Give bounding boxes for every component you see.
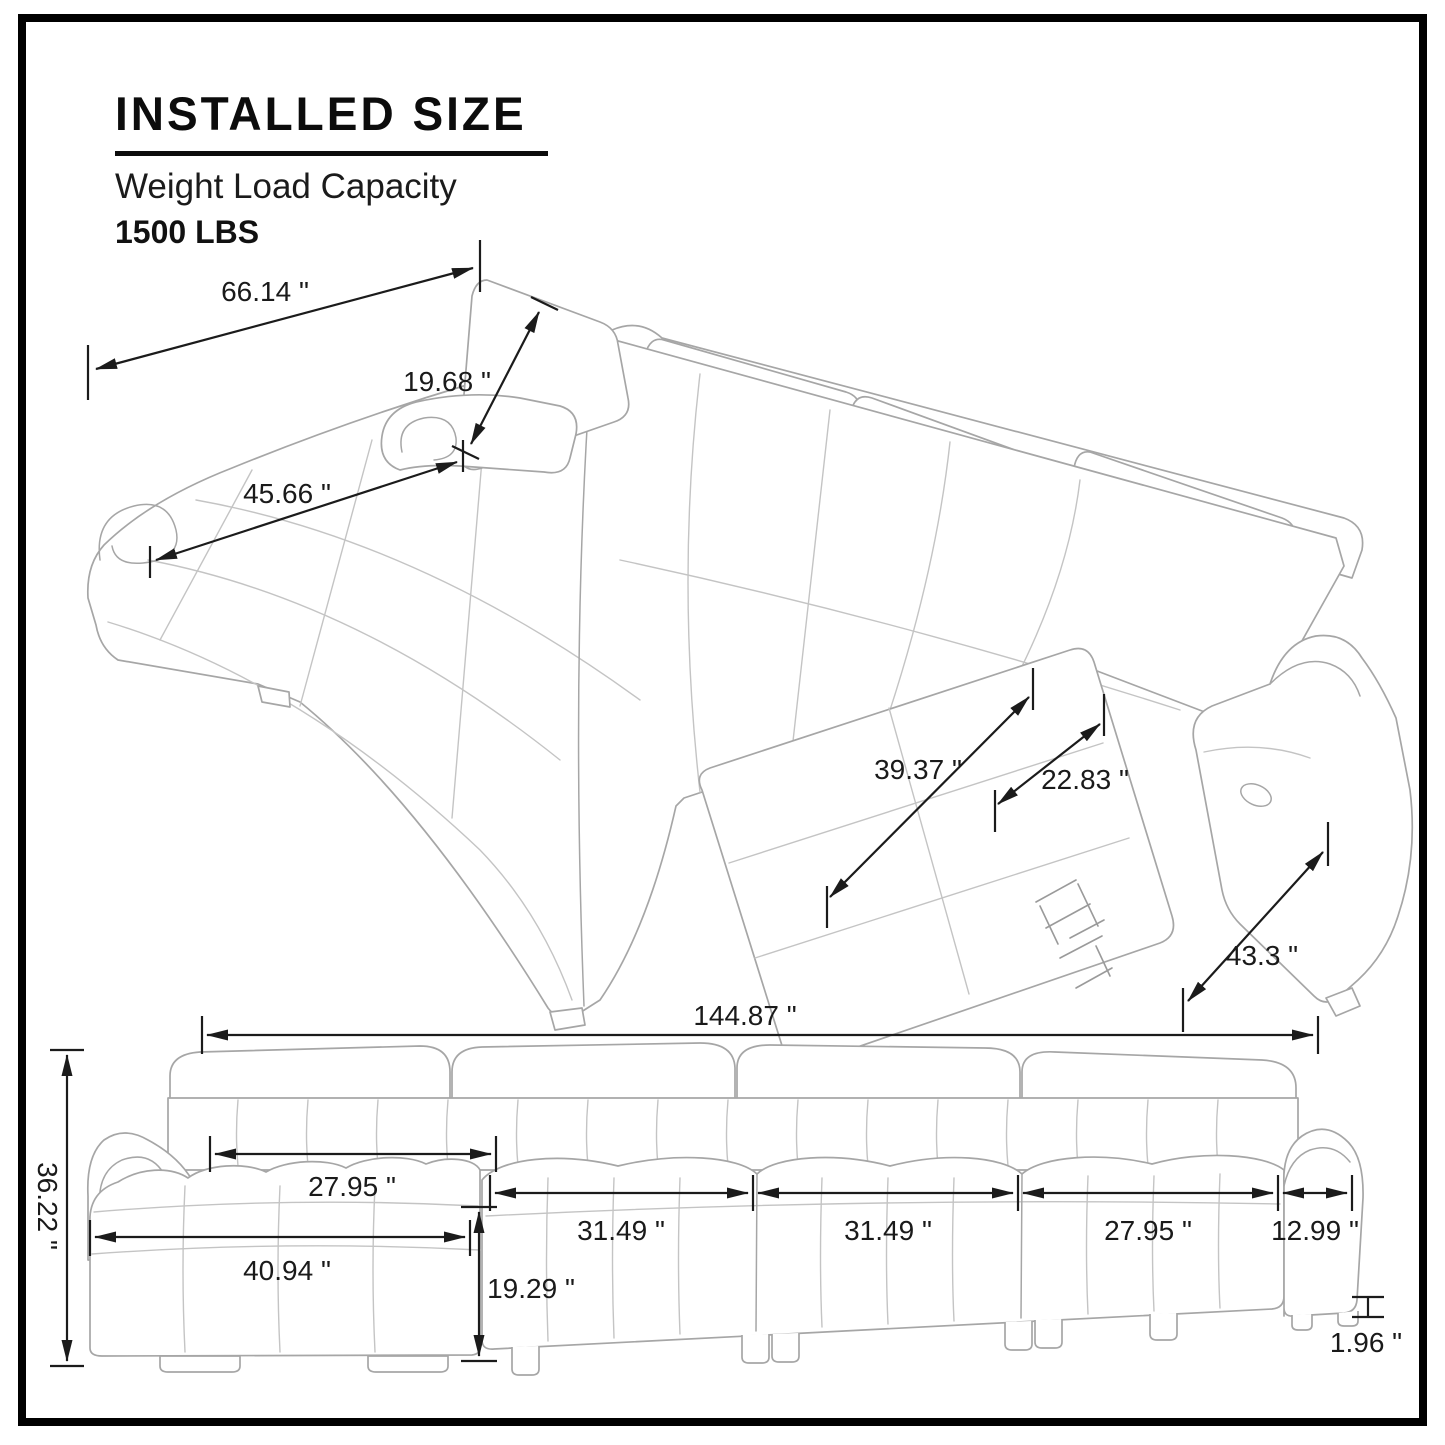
dim-label-seat3: 27.95 "	[1104, 1215, 1192, 1246]
dim-label-headrest: 19.68 "	[403, 366, 491, 397]
chaise-arm-pillow	[381, 395, 576, 473]
dim-label-recliner: 39.37 "	[874, 754, 962, 785]
dim-label-back-width: 66.14 "	[221, 276, 309, 307]
sofa-foot	[550, 1008, 585, 1030]
diagram-canvas: 66.14 " 19.68 " 45.66 " 39.37 " 22.83 "	[0, 0, 1445, 1445]
arm-leg	[1338, 1311, 1358, 1326]
top-sofa-drawing	[88, 280, 1412, 1066]
dim-label-seat1: 31.49 "	[577, 1215, 665, 1246]
dim-label-chaise-length: 45.66 "	[243, 478, 331, 509]
sofa-foot	[160, 1356, 240, 1372]
dim-label-chaise-height: 19.29 "	[487, 1273, 575, 1304]
dim-label-arm-width: 12.99 "	[1271, 1215, 1359, 1246]
arm-leg	[1292, 1314, 1312, 1330]
dim-label-side-depth: 43.3 "	[1226, 940, 1298, 971]
dim-label-overall-width: 144.87 "	[693, 1000, 796, 1031]
dim-label-overall-height: 36.22 "	[32, 1162, 63, 1250]
headrest	[452, 1043, 735, 1102]
dim-label-seat-depth: 22.83 "	[1041, 764, 1129, 795]
dim-label-chaise-outer: 40.94 "	[243, 1255, 331, 1286]
dim-label-seat2: 31.49 "	[844, 1215, 932, 1246]
headrest	[737, 1045, 1020, 1102]
dim-label-chaise-inner: 27.95 "	[308, 1171, 396, 1202]
headrest	[170, 1046, 450, 1102]
front-sofa-drawing	[88, 1043, 1363, 1375]
dim-label-leg-height: 1.96 "	[1330, 1327, 1402, 1358]
headrest	[1022, 1052, 1296, 1102]
spec-sheet: INSTALLED SIZE Weight Load Capacity 1500…	[0, 0, 1445, 1445]
sofa-foot	[368, 1356, 448, 1372]
